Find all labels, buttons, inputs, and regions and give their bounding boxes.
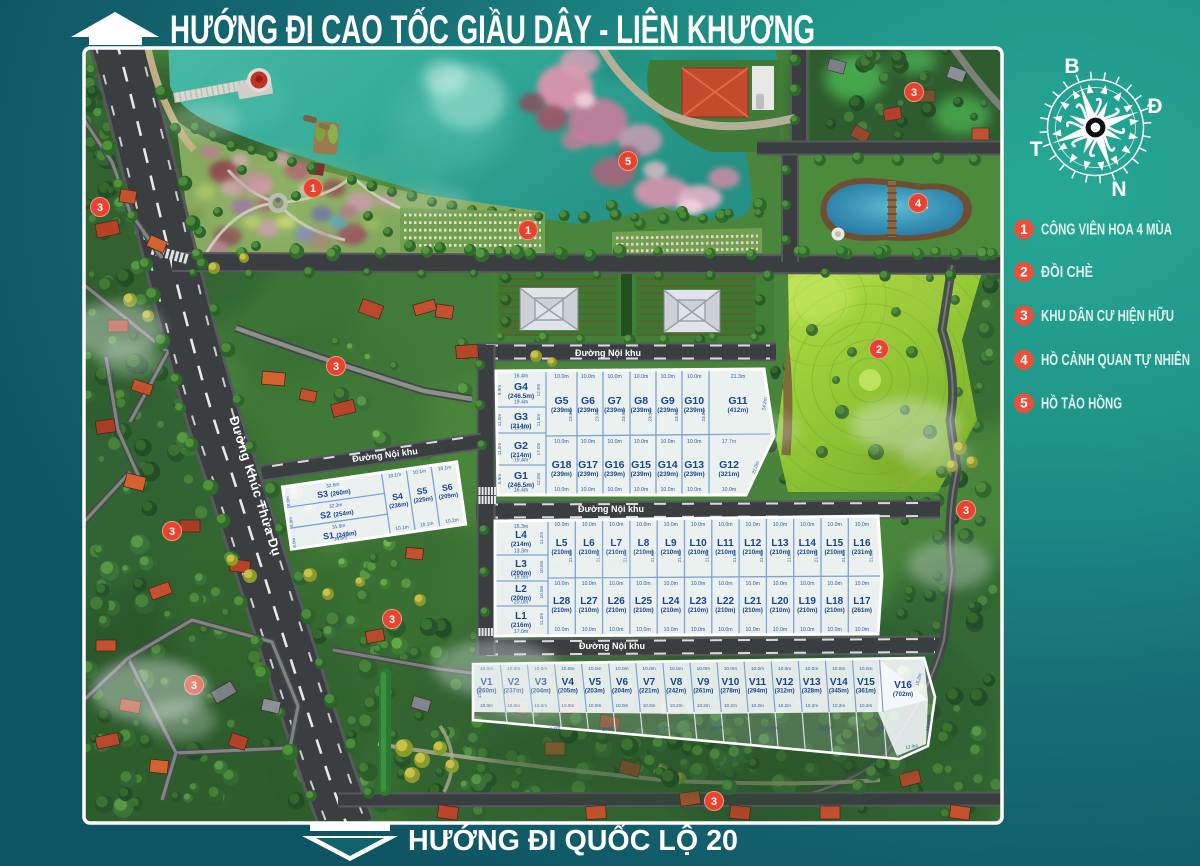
svg-text:10.0m: 10.0m: [687, 374, 701, 380]
svg-text:V6: V6: [616, 677, 629, 688]
svg-text:L9: L9: [665, 538, 677, 549]
svg-text:10.0m: 10.0m: [805, 666, 818, 672]
svg-text:L21: L21: [744, 596, 762, 607]
svg-text:G15: G15: [631, 459, 651, 471]
svg-text:10.0m: 10.0m: [554, 374, 568, 380]
svg-text:5: 5: [1020, 396, 1028, 411]
svg-text:11.2m: 11.2m: [539, 532, 544, 545]
svg-text:10.0m: 10.0m: [718, 581, 732, 587]
svg-text:3: 3: [333, 361, 339, 373]
svg-text:L28: L28: [553, 596, 571, 607]
svg-text:G12: G12: [719, 459, 739, 471]
svg-text:(312m): (312m): [775, 688, 795, 695]
svg-text:Đường Nội khu: Đường Nội khu: [578, 504, 644, 514]
svg-text:N: N: [1111, 178, 1126, 201]
svg-text:L15: L15: [826, 538, 844, 549]
svg-text:V14: V14: [830, 677, 848, 688]
svg-text:10.0m: 10.0m: [745, 581, 759, 587]
svg-text:15.3m: 15.3m: [514, 524, 528, 530]
svg-text:L26: L26: [608, 596, 626, 607]
svg-text:HƯỚNG ĐI CAO TỐC GIẦU DÂY - LI: HƯỚNG ĐI CAO TỐC GIẦU DÂY - LIÊN KHƯƠNG: [170, 6, 815, 52]
svg-text:L19: L19: [799, 596, 817, 607]
svg-text:S6: S6: [441, 482, 453, 493]
svg-text:G2: G2: [514, 440, 528, 452]
svg-text:L20: L20: [771, 596, 789, 607]
svg-text:10.0m: 10.0m: [855, 627, 869, 633]
svg-text:21.0m: 21.0m: [732, 549, 737, 562]
svg-text:10.0m: 10.0m: [581, 439, 595, 445]
svg-text:L14: L14: [799, 538, 817, 549]
svg-text:10.0m: 10.0m: [697, 666, 710, 672]
svg-text:10.0m: 10.0m: [859, 666, 872, 672]
svg-text:10.2m: 10.2m: [724, 703, 737, 708]
svg-text:KHU DÂN CƯ HIỆN HỮU: KHU DÂN CƯ HIỆN HỮU: [1041, 305, 1174, 325]
svg-text:(210m): (210m): [551, 607, 571, 614]
svg-text:(239m): (239m): [578, 471, 599, 478]
svg-text:G6: G6: [581, 395, 595, 407]
svg-text:23.9m: 23.9m: [595, 408, 601, 421]
svg-text:L16: L16: [853, 538, 871, 549]
svg-text:21.0m: 21.0m: [705, 549, 710, 562]
svg-text:HƯỚNG ĐI QUỐC LỘ 20: HƯỚNG ĐI QUỐC LỘ 20: [408, 823, 738, 857]
svg-text:B: B: [1064, 55, 1079, 78]
svg-text:(278m): (278m): [720, 688, 740, 695]
svg-text:21.0m: 21.0m: [814, 549, 819, 562]
svg-text:10.0m: 10.0m: [609, 627, 623, 633]
svg-text:4: 4: [915, 198, 922, 210]
svg-text:10.2m: 10.2m: [805, 703, 818, 708]
svg-text:10.0m: 10.0m: [554, 581, 568, 587]
svg-text:10.0m: 10.0m: [642, 666, 655, 672]
svg-text:(221m): (221m): [639, 688, 659, 695]
svg-text:L4: L4: [515, 530, 527, 541]
svg-text:1: 1: [310, 183, 316, 195]
svg-text:11.0m: 11.0m: [539, 613, 544, 626]
svg-text:10.0m: 10.0m: [664, 627, 678, 633]
svg-text:23.9m: 23.9m: [621, 408, 627, 421]
svg-text:ĐỒI CHÈ: ĐỒI CHÈ: [1041, 262, 1093, 281]
svg-text:S4: S4: [391, 491, 403, 502]
svg-text:G17: G17: [578, 459, 598, 471]
svg-text:5.9m: 5.9m: [497, 474, 502, 484]
svg-text:T: T: [1030, 138, 1043, 161]
svg-text:10.0m: 10.0m: [855, 581, 869, 587]
svg-text:3: 3: [389, 614, 395, 626]
svg-text:L11: L11: [717, 538, 734, 549]
svg-text:21.0m: 21.0m: [841, 549, 846, 562]
svg-text:23.9m: 23.9m: [648, 408, 654, 421]
svg-text:10.0m: 10.0m: [636, 627, 650, 633]
svg-text:21.0m: 21.0m: [677, 549, 682, 562]
svg-text:10.2m: 10.2m: [778, 703, 791, 708]
svg-text:V10: V10: [722, 677, 740, 688]
svg-text:L18: L18: [826, 596, 844, 607]
svg-text:(216m): (216m): [511, 622, 531, 629]
svg-text:10.0m: 10.0m: [616, 703, 629, 708]
svg-text:V7: V7: [643, 677, 656, 688]
svg-text:10.0m: 10.0m: [660, 439, 674, 445]
svg-text:G10: G10: [684, 395, 704, 407]
svg-text:21.0m: 21.0m: [759, 549, 764, 562]
svg-text:11.0m: 11.0m: [536, 414, 541, 427]
svg-text:10.0m: 10.0m: [664, 581, 678, 587]
svg-text:10.0m: 10.0m: [554, 522, 568, 528]
svg-text:10.0m: 10.0m: [827, 522, 841, 528]
svg-text:10.0m: 10.0m: [827, 627, 841, 633]
svg-text:Đường Nội khu: Đường Nội khu: [575, 348, 641, 358]
svg-text:10.0m: 10.0m: [773, 522, 787, 528]
svg-text:10.0m: 10.0m: [691, 627, 705, 633]
svg-text:(239m): (239m): [604, 471, 625, 478]
svg-text:G9: G9: [661, 395, 675, 407]
svg-text:(210m): (210m): [824, 607, 844, 614]
svg-text:(321m): (321m): [719, 471, 740, 478]
svg-text:G5: G5: [554, 395, 568, 407]
svg-text:10.0m: 10.0m: [634, 487, 648, 493]
svg-text:4: 4: [1020, 352, 1028, 367]
svg-text:10.2m: 10.2m: [860, 703, 873, 708]
svg-text:1: 1: [1020, 222, 1028, 237]
svg-text:10.0m: 10.0m: [855, 522, 869, 528]
svg-text:G4: G4: [514, 381, 528, 393]
svg-text:10.0m: 10.0m: [554, 487, 568, 493]
svg-text:11.0m: 11.0m: [497, 443, 502, 456]
svg-text:V15: V15: [857, 677, 875, 688]
svg-text:V8: V8: [670, 677, 683, 688]
svg-text:G14: G14: [658, 459, 678, 471]
svg-text:10.0m: 10.0m: [581, 487, 595, 493]
svg-text:21.0m: 21.0m: [868, 549, 873, 562]
svg-text:10.0m: 10.0m: [588, 666, 601, 672]
svg-text:L25: L25: [635, 596, 653, 607]
svg-text:11.0m: 11.0m: [497, 414, 502, 427]
svg-text:L24: L24: [662, 596, 680, 607]
svg-text:16.4m: 16.4m: [514, 374, 528, 380]
svg-text:1: 1: [525, 225, 531, 237]
svg-text:10.0m: 10.0m: [751, 666, 764, 672]
svg-text:Đường Nội khu: Đường Nội khu: [579, 641, 645, 651]
svg-text:(210m): (210m): [715, 607, 735, 614]
svg-text:10.0m: 10.0m: [636, 581, 650, 587]
svg-text:L3: L3: [515, 559, 527, 570]
svg-text:L17: L17: [853, 596, 871, 607]
svg-text:23.9m: 23.9m: [674, 408, 680, 421]
svg-text:10.0m: 10.0m: [718, 522, 732, 528]
svg-text:10.2m: 10.2m: [832, 703, 845, 708]
svg-text:23.9m: 23.9m: [701, 408, 707, 421]
svg-text:G7: G7: [608, 395, 622, 407]
svg-text:3: 3: [711, 796, 717, 808]
svg-text:12.0m: 12.0m: [536, 472, 541, 485]
svg-text:17.0m: 17.0m: [514, 629, 528, 635]
svg-text:L2: L2: [515, 584, 527, 595]
svg-text:(203m): (203m): [585, 688, 605, 695]
svg-text:21.0m: 21.0m: [786, 549, 791, 562]
svg-text:10.0m: 10.0m: [607, 487, 621, 493]
svg-text:10.0m: 10.0m: [582, 522, 596, 528]
svg-text:10.0m: 10.0m: [724, 666, 737, 672]
svg-text:(412m): (412m): [728, 407, 749, 414]
svg-text:(204m): (204m): [612, 688, 632, 695]
svg-text:10.0m: 10.0m: [582, 627, 596, 633]
svg-text:10.0m: 10.0m: [607, 439, 621, 445]
svg-text:(239m): (239m): [684, 471, 705, 478]
svg-text:(361m): (361m): [856, 688, 876, 695]
svg-text:10.0m: 10.0m: [773, 581, 787, 587]
svg-text:V4: V4: [562, 677, 575, 688]
svg-text:23.9m: 23.9m: [568, 408, 574, 421]
svg-text:L12: L12: [744, 538, 762, 549]
svg-text:10.2m: 10.2m: [670, 703, 683, 708]
svg-text:10.0m: 10.0m: [745, 627, 759, 633]
svg-text:17.0m: 17.0m: [536, 442, 541, 455]
svg-text:10.2m: 10.2m: [751, 703, 764, 708]
svg-text:21.0m: 21.0m: [568, 549, 573, 562]
svg-text:19.4m: 19.4m: [514, 400, 528, 406]
svg-text:10.0m: 10.0m: [800, 581, 814, 587]
svg-text:5: 5: [625, 156, 631, 168]
svg-text:(210m): (210m): [797, 607, 817, 614]
svg-text:10.0m: 10.0m: [609, 581, 623, 587]
svg-text:G11: G11: [728, 395, 747, 407]
svg-text:(210m): (210m): [770, 607, 790, 614]
svg-text:L10: L10: [689, 538, 707, 549]
svg-text:13.3m: 13.3m: [514, 549, 528, 555]
svg-text:L6: L6: [583, 538, 595, 549]
svg-text:10.0m: 10.0m: [660, 374, 674, 380]
svg-text:10.0m: 10.0m: [636, 522, 650, 528]
svg-text:10.0m: 10.0m: [691, 522, 705, 528]
svg-text:(214m): (214m): [511, 541, 531, 548]
svg-text:9.9m: 9.9m: [497, 385, 502, 395]
svg-text:10.0m: 10.0m: [660, 487, 674, 493]
svg-text:10.0m: 10.0m: [670, 666, 683, 672]
svg-text:(210m): (210m): [606, 607, 626, 614]
svg-text:10.0m: 10.0m: [800, 522, 814, 528]
svg-text:10.0m: 10.0m: [773, 627, 787, 633]
svg-text:(702m): (702m): [893, 691, 913, 698]
svg-text:V11: V11: [749, 677, 767, 688]
svg-text:10.0m: 10.0m: [609, 522, 623, 528]
svg-text:G13: G13: [684, 459, 704, 471]
svg-text:(261m): (261m): [852, 607, 872, 614]
svg-text:L5: L5: [556, 538, 568, 549]
svg-text:L22: L22: [717, 596, 735, 607]
svg-text:10.0m: 10.0m: [687, 487, 701, 493]
svg-text:L27: L27: [580, 596, 598, 607]
svg-text:21.3m: 21.3m: [731, 374, 745, 380]
svg-text:19.4m: 19.4m: [514, 458, 528, 464]
svg-text:L23: L23: [689, 596, 707, 607]
svg-text:V9: V9: [697, 677, 710, 688]
svg-text:19.9m: 19.9m: [514, 575, 528, 581]
svg-text:10.0m: 10.0m: [539, 585, 544, 598]
svg-text:HỒ TẢO HỒNG: HỒ TẢO HỒNG: [1041, 393, 1122, 412]
svg-text:3: 3: [97, 202, 103, 214]
svg-text:(242m): (242m): [666, 688, 686, 695]
svg-text:20.0m: 20.0m: [514, 600, 528, 606]
svg-text:10.0m: 10.0m: [643, 703, 656, 708]
svg-text:Đ: Đ: [1147, 95, 1162, 118]
svg-text:(328m): (328m): [802, 688, 822, 695]
svg-text:12.9m: 12.9m: [536, 383, 541, 396]
svg-text:V16: V16: [894, 680, 912, 691]
svg-text:(210m): (210m): [579, 607, 599, 614]
svg-text:10.0m: 10.0m: [718, 627, 732, 633]
svg-text:2: 2: [876, 344, 882, 356]
svg-text:10.0m: 10.0m: [634, 374, 648, 380]
svg-text:10.0m: 10.0m: [561, 666, 574, 672]
svg-text:G8: G8: [634, 395, 648, 407]
svg-text:S5: S5: [416, 485, 428, 496]
svg-text:10.0m: 10.0m: [745, 522, 759, 528]
svg-text:V5: V5: [589, 677, 602, 688]
svg-text:10.0m: 10.0m: [827, 581, 841, 587]
svg-text:19.4m: 19.4m: [514, 426, 528, 432]
svg-text:(261m): (261m): [693, 688, 713, 695]
svg-text:2: 2: [1020, 264, 1028, 279]
svg-text:G16: G16: [605, 459, 625, 471]
svg-text:V13: V13: [803, 677, 821, 688]
svg-text:L1: L1: [515, 611, 527, 622]
svg-text:10.0m: 10.0m: [722, 487, 736, 493]
svg-text:(239m): (239m): [551, 471, 572, 478]
svg-text:10.0m: 10.0m: [589, 703, 602, 708]
svg-text:10.0m: 10.0m: [664, 522, 678, 528]
svg-text:10.0m: 10.0m: [582, 581, 596, 587]
svg-text:G1: G1: [514, 470, 528, 482]
svg-text:L13: L13: [771, 538, 789, 549]
svg-text:HỒ CẢNH QUAN TỰ NHIÊN: HỒ CẢNH QUAN TỰ NHIÊN: [1041, 350, 1190, 369]
svg-text:(239m): (239m): [657, 471, 678, 478]
svg-text:10.0m: 10.0m: [615, 666, 628, 672]
svg-text:10.0m: 10.0m: [554, 439, 568, 445]
svg-text:V12: V12: [776, 677, 794, 688]
svg-text:10.0m: 10.0m: [581, 374, 595, 380]
svg-text:(210m): (210m): [661, 607, 681, 614]
svg-text:(210m): (210m): [743, 607, 763, 614]
svg-text:10.0m: 10.0m: [607, 374, 621, 380]
svg-text:10.0m: 10.0m: [691, 581, 705, 587]
svg-text:10.0m: 10.0m: [634, 439, 648, 445]
svg-text:10.0m: 10.0m: [800, 627, 814, 633]
svg-text:3: 3: [1020, 308, 1028, 323]
svg-text:(210m): (210m): [633, 607, 653, 614]
svg-text:(345m): (345m): [829, 688, 849, 695]
svg-text:10.0m: 10.0m: [832, 666, 845, 672]
svg-text:3: 3: [169, 526, 175, 538]
svg-text:CÔNG VIÊN HOA 4 MÙA: CÔNG VIÊN HOA 4 MÙA: [1041, 219, 1172, 238]
svg-text:16.4m: 16.4m: [514, 488, 528, 494]
svg-text:(294m): (294m): [748, 688, 768, 695]
svg-text:G18: G18: [552, 459, 572, 471]
svg-text:3: 3: [911, 87, 917, 99]
svg-text:10.0m: 10.0m: [687, 439, 701, 445]
svg-text:(239m): (239m): [631, 471, 652, 478]
svg-text:(210m): (210m): [688, 607, 708, 614]
svg-text:G3: G3: [514, 411, 528, 423]
svg-text:10.0m: 10.0m: [778, 666, 791, 672]
svg-text:3: 3: [963, 505, 969, 517]
svg-text:10.2m: 10.2m: [697, 703, 710, 708]
svg-text:10.0m: 10.0m: [539, 560, 544, 573]
svg-text:10.0m: 10.0m: [554, 627, 568, 633]
